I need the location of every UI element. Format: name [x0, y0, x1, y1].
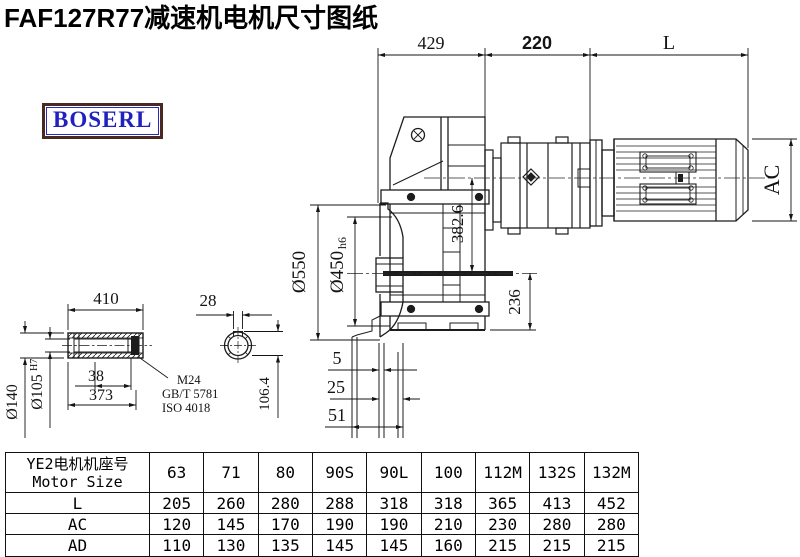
- adapter-stage: [485, 137, 590, 234]
- dim-140: Ø140: [4, 384, 21, 420]
- centerlines: [347, 178, 774, 274]
- svg-text:H7: H7: [29, 359, 40, 371]
- table-row: L 205 260 280 288 318 318 365 413 452: [6, 493, 639, 514]
- svg-text:h6: h6: [335, 237, 349, 249]
- svg-text:Ø450: Ø450: [327, 251, 348, 293]
- dim-105H7: Ø105 H7: [29, 359, 46, 410]
- col-header: 80: [258, 453, 312, 493]
- dim-AC: AC: [759, 165, 784, 196]
- std-gbt: GB/T 5781: [162, 387, 218, 401]
- dim-450h6: Ø450 h6: [327, 237, 349, 293]
- dim-106-4: 106.4: [257, 377, 273, 411]
- motor-outline: [578, 139, 748, 226]
- col-header: 112M: [475, 453, 529, 493]
- dim-51: 51: [328, 405, 346, 425]
- col-header: 132S: [530, 453, 584, 493]
- dim-373: 373: [89, 387, 113, 404]
- dim-410: 410: [93, 289, 119, 308]
- dim-5: 5: [333, 348, 342, 368]
- table-row: AD 110 130 135 145 145 160 215 215 215: [6, 535, 639, 557]
- col-header: 100: [421, 453, 475, 493]
- row-label: L: [6, 493, 150, 514]
- col-header: 63: [150, 453, 204, 493]
- dim-L: L: [663, 32, 675, 54]
- col-header: 90L: [367, 453, 421, 493]
- dimension-lines: [310, 48, 797, 427]
- dim-38: 38: [88, 368, 104, 385]
- thread-callout: M24: [177, 373, 201, 387]
- row-label: AD: [6, 535, 150, 557]
- dim-236: 236: [505, 289, 524, 315]
- dim-550: Ø550: [289, 251, 310, 293]
- table-row: AC 120 145 170 190 190 210 230 280 280: [6, 514, 639, 535]
- dim-25: 25: [327, 377, 345, 397]
- drawing-sheet: FAF127R77减速机电机尺寸图纸 BOSERL: [0, 0, 800, 557]
- dim-28: 28: [200, 291, 217, 310]
- svg-text:Ø105: Ø105: [29, 374, 46, 410]
- col-header: 90S: [312, 453, 366, 493]
- row-label: AC: [6, 514, 150, 535]
- col-header: 71: [204, 453, 258, 493]
- std-iso: ISO 4018: [162, 401, 210, 415]
- dim-220: 220: [522, 33, 552, 53]
- col-header: 132M: [584, 453, 638, 493]
- dim-382-6: 382.6: [448, 205, 467, 243]
- motor-size-table: YE2电机机座号 Motor Size 63 71 80 90S 90L 100…: [5, 452, 639, 557]
- output-flange-bell: [352, 203, 403, 438]
- keyway-section: [220, 327, 256, 364]
- dim-429: 429: [418, 33, 445, 53]
- shaft-detail: [62, 333, 168, 378]
- table-header-motor-size: YE2电机机座号 Motor Size: [6, 453, 150, 493]
